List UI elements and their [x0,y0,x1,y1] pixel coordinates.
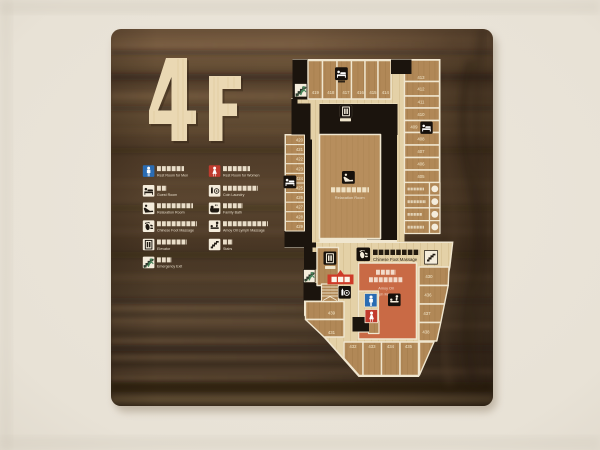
svg-text:Rest Room for Women: Rest Room for Women [223,173,259,177]
svg-text:421: 421 [296,147,304,152]
svg-text:406: 406 [417,161,425,166]
svg-text:424: 424 [296,176,304,181]
svg-text:408: 408 [417,137,425,142]
svg-text:437: 437 [423,311,431,316]
svg-text:422: 422 [296,157,304,162]
svg-text:407: 407 [417,149,425,154]
svg-text:429: 429 [296,224,304,229]
svg-text:415: 415 [369,90,377,95]
svg-text:417: 417 [342,90,350,95]
svg-text:Coin Laundry: Coin Laundry [223,193,245,197]
svg-text:419: 419 [312,90,320,95]
svg-text:425: 425 [296,186,304,191]
svg-text:434: 434 [387,344,395,349]
svg-text:Stairs: Stairs [223,247,232,251]
svg-text:Relaxation Room: Relaxation Room [335,195,365,200]
svg-text:411: 411 [418,100,425,105]
svg-text:Emergency Exit: Emergency Exit [157,265,182,269]
svg-text:Chinese Foot Massage: Chinese Foot Massage [373,257,418,262]
svg-text:Family Bath: Family Bath [223,211,242,215]
svg-text:409: 409 [410,124,418,129]
svg-text:428: 428 [296,214,304,219]
svg-text:418: 418 [327,90,335,95]
svg-text:413: 413 [417,75,425,80]
svg-text:435: 435 [405,344,413,349]
svg-text:Relaxation Room: Relaxation Room [157,211,185,215]
svg-text:Chinese Foot Massage: Chinese Foot Massage [157,229,194,233]
svg-text:Amoy Oil Lymph Massage: Amoy Oil Lymph Massage [223,229,265,233]
svg-text:Rest Room for Men: Rest Room for Men [157,173,188,177]
svg-text:405: 405 [417,174,425,179]
svg-text:Elevator: Elevator [157,247,171,251]
svg-text:427: 427 [296,205,304,210]
svg-text:431: 431 [328,330,336,335]
svg-text:436: 436 [424,293,432,298]
svg-text:430: 430 [425,274,433,279]
svg-text:420: 420 [296,138,304,143]
svg-text:410: 410 [417,112,425,117]
svg-text:412: 412 [417,87,425,92]
svg-text:432: 432 [349,344,357,349]
svg-text:439: 439 [328,311,336,316]
svg-text:Guest Room: Guest Room [157,193,177,197]
svg-text:433: 433 [368,344,376,349]
svg-text:426: 426 [296,195,304,200]
svg-text:416: 416 [357,90,365,95]
svg-text:414: 414 [382,90,390,95]
svg-text:Amoy Oil: Amoy Oil [378,287,394,291]
svg-text:423: 423 [296,166,304,171]
svg-text:438: 438 [422,330,430,335]
